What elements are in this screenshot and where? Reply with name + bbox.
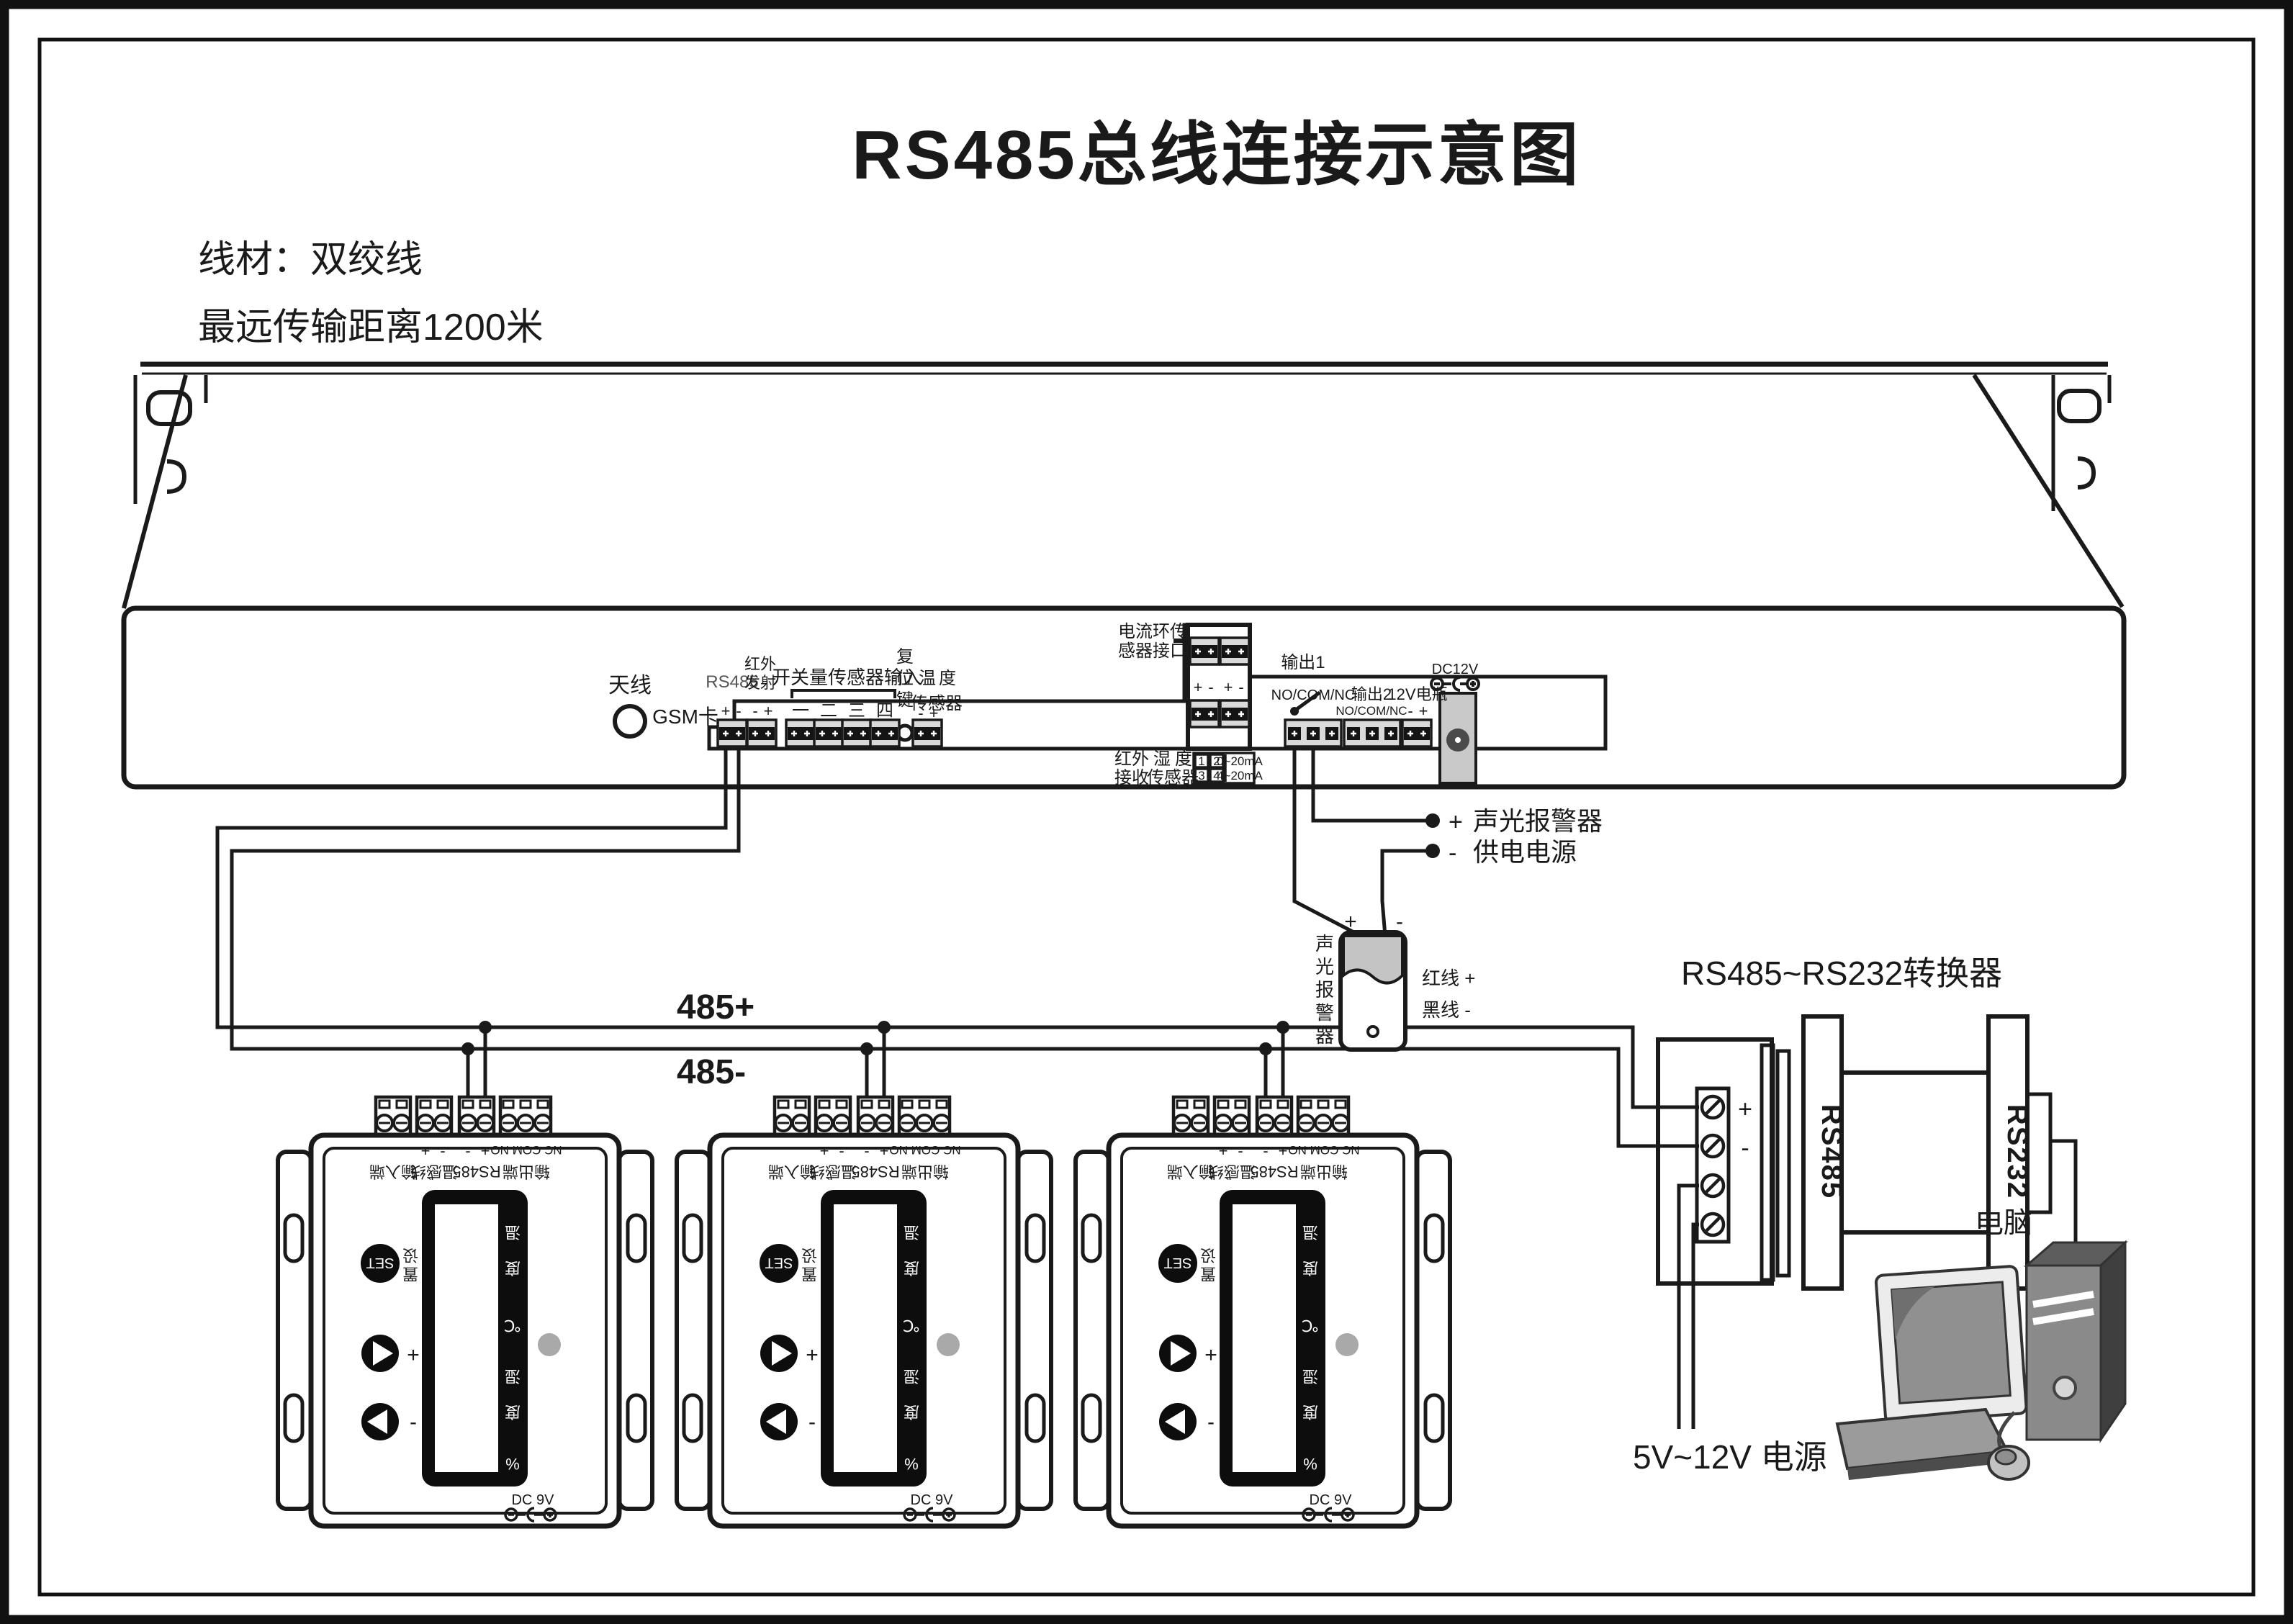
c-485plus: + <box>481 1142 490 1160</box>
disp-ch6: % <box>505 1455 520 1473</box>
controller-ear-right-slot-1 <box>628 1215 645 1261</box>
bus-485-minus-label: 485- <box>677 1053 746 1091</box>
temp-minus: - <box>918 704 923 722</box>
alarm-wire-plus <box>1294 747 1361 936</box>
current-loop-label-1: 电流环传 <box>1118 622 1187 641</box>
gsm-label: GSM卡 <box>652 705 718 728</box>
temp-plus: + <box>929 704 939 722</box>
converter-left-box <box>1658 1039 1772 1284</box>
reset-label-1: 复 <box>896 647 914 667</box>
hum-label-3: 传感器 <box>1147 768 1199 788</box>
cl-minus1: - <box>1208 678 1213 696</box>
converter-label: RS485~RS232转换器 <box>1681 955 2002 992</box>
rack-ear-right-hole-2 <box>2078 459 2094 487</box>
table-1: 1 <box>1198 754 1204 768</box>
pc-power-button <box>2054 1377 2076 1399</box>
di-4: 四 <box>876 701 893 721</box>
alarm-vert-4: 警 <box>1315 1002 1334 1024</box>
temp-label-2: 度 <box>939 669 956 688</box>
page-title: RS485总线连接示意图 <box>852 117 1582 194</box>
computer: 电脑 <box>1837 1207 2125 1480</box>
bat-plus: + <box>1419 702 1428 720</box>
set-cn-2: 置 <box>402 1265 418 1283</box>
alarm-annot-label: 声光报警器 <box>1473 806 1603 836</box>
di-3: 三 <box>848 701 865 721</box>
alarm-annot-minus-wire <box>1382 851 1430 936</box>
rs485-plus: + <box>721 702 731 720</box>
down-button-minus: - <box>410 1410 417 1434</box>
c-group2-label: 温感线 <box>410 1163 458 1181</box>
battery-label: 12V电瓶 <box>1387 685 1447 703</box>
dc9v-label: DC 9V <box>512 1492 555 1508</box>
bat-minus: - <box>1407 702 1413 720</box>
wall-controller-2 <box>677 1097 1051 1526</box>
pc-tower-side <box>2101 1242 2125 1440</box>
rs485-minus: - <box>736 702 741 720</box>
current-loop-label-2: 感器接口 <box>1118 641 1187 661</box>
out1-label: 输出1 <box>1281 653 1325 672</box>
controller-display-window <box>435 1204 498 1472</box>
alarm-vert-2: 光 <box>1315 956 1334 978</box>
controller-ear-right-slot-2 <box>628 1395 645 1441</box>
alarm-annot-minus: - <box>1449 839 1456 867</box>
controller-ear-left <box>278 1152 311 1509</box>
converter-power-label: 5V~12V 电源 <box>1633 1438 1827 1476</box>
antenna-icon <box>615 706 645 736</box>
dc-jack-pin <box>1455 737 1461 743</box>
wall-controller: + - - + NC COM NO 输入端 温感线 RS485 输出端 温 度 … <box>278 1097 652 1526</box>
alarm-red-wire-label: 红线 + <box>1422 967 1475 989</box>
rack-ear-right-hole-1 <box>2059 391 2099 421</box>
irtx-minus: - <box>752 702 757 720</box>
bus-485-plus-wire <box>217 747 1699 1107</box>
temp-label-1: 温 <box>919 669 936 688</box>
note-distance: 最远传输距离1200米 <box>198 307 544 348</box>
hum-label-1: 湿 <box>1153 749 1171 769</box>
c-group4-label: 输出端 <box>503 1163 550 1181</box>
status-led <box>538 1333 561 1356</box>
disp-ch3: ℃ <box>504 1317 522 1335</box>
rs485-wiring-diagram: RS485总线连接示意图 线材：双绞线 最远传输距离1200米 <box>0 0 2293 1624</box>
irtx-plus: + <box>764 702 773 720</box>
alarm-vert-1: 声 <box>1315 933 1334 955</box>
antenna-label: 天线 <box>608 674 652 698</box>
out2-nocomnc: NO/COM/NC <box>1335 704 1407 718</box>
dc12v-label: DC12V <box>1432 662 1479 677</box>
cl-minus2: - <box>1238 678 1243 696</box>
disp-ch5: 度 <box>505 1403 521 1421</box>
ir-rx-label-1: 红外 <box>1114 749 1149 769</box>
rs232-pc-wire <box>2050 1141 2076 1247</box>
rack-ear-left-hole-2 <box>167 461 184 492</box>
controller-ear-left-slot-1 <box>285 1215 302 1261</box>
c-tplus: + <box>421 1142 431 1160</box>
di-2: 二 <box>820 701 837 721</box>
out1-nocomnc: NO/COM/NC <box>1271 687 1356 703</box>
disp-ch1: 温 <box>505 1223 521 1241</box>
converter-minus: - <box>1741 1134 1749 1162</box>
out2-label: 输出2 <box>1351 685 1392 703</box>
c-485minus: - <box>465 1142 470 1160</box>
set-button-label: SET <box>366 1255 395 1271</box>
note-wire-type: 线材：双绞线 <box>198 239 423 281</box>
converter-mid-body <box>1842 1073 1988 1232</box>
disp-ch4: 湿 <box>505 1367 521 1385</box>
table-row1-range: 0~20mA <box>1217 754 1263 768</box>
reset-label-2: 位 <box>896 669 914 688</box>
c-tminus: - <box>440 1142 445 1160</box>
alarm-minus-label: - <box>1396 910 1403 934</box>
rack-ear-left-hole-1 <box>148 392 190 424</box>
pc-label: 电脑 <box>1975 1207 2032 1239</box>
rs485-connector-label: RS485 <box>1816 1104 1847 1199</box>
di-1: 一 <box>792 701 809 721</box>
disp-ch2: 度 <box>505 1259 521 1277</box>
alarm-annot-plus-wire <box>1313 747 1430 821</box>
converter-screws <box>1702 1096 1724 1235</box>
rs232-connector-label: RS232 <box>2001 1104 2033 1199</box>
power-annot-label: 供电电源 <box>1473 837 1577 867</box>
c-group1-label: 输入端 <box>369 1163 417 1181</box>
diagram-page: RS485总线连接示意图 线材：双绞线 最远传输距离1200米 <box>0 0 2293 1624</box>
converter-plate-1 <box>1762 1045 1773 1280</box>
cl-plus2: + <box>1224 678 1233 696</box>
up-button-plus: + <box>407 1343 420 1367</box>
alarm-section: + 声光报警器 - 供电电源 + - 声 光 报 警 器 红线 + 黑线 - <box>1315 806 1603 1050</box>
table-3: 3 <box>1198 769 1204 782</box>
hum-label-2: 度 <box>1175 749 1192 769</box>
wall-controller-3 <box>1076 1097 1450 1526</box>
alarm-vert-3: 报 <box>1315 979 1334 1001</box>
converter-plus: + <box>1738 1096 1752 1123</box>
rack-unit <box>124 364 2124 787</box>
di-bracket <box>792 690 895 698</box>
c-group3-label: RS485 <box>452 1163 500 1181</box>
converter-plate-2 <box>1778 1051 1789 1276</box>
c-ncm: NC COM NO <box>490 1143 562 1157</box>
alarm-vert-5: 器 <box>1315 1025 1334 1047</box>
set-cn-1: 设 <box>402 1246 418 1264</box>
pc-mouse-buttons <box>1996 1450 2016 1464</box>
bus-485-plus-label: 485+ <box>677 988 754 1027</box>
cl-plus1: + <box>1194 678 1203 696</box>
table-row2-range: 4~20mA <box>1217 769 1263 782</box>
controller-ear-left-slot-2 <box>285 1395 302 1441</box>
controller-ear-right <box>619 1152 652 1509</box>
conv-power-wire-2 <box>1693 1224 1699 1429</box>
alarm-annot-plus: + <box>1449 808 1463 836</box>
ir-rx-label-2: 接收 <box>1114 768 1149 788</box>
alarm-black-wire-label: 黑线 - <box>1422 999 1471 1021</box>
